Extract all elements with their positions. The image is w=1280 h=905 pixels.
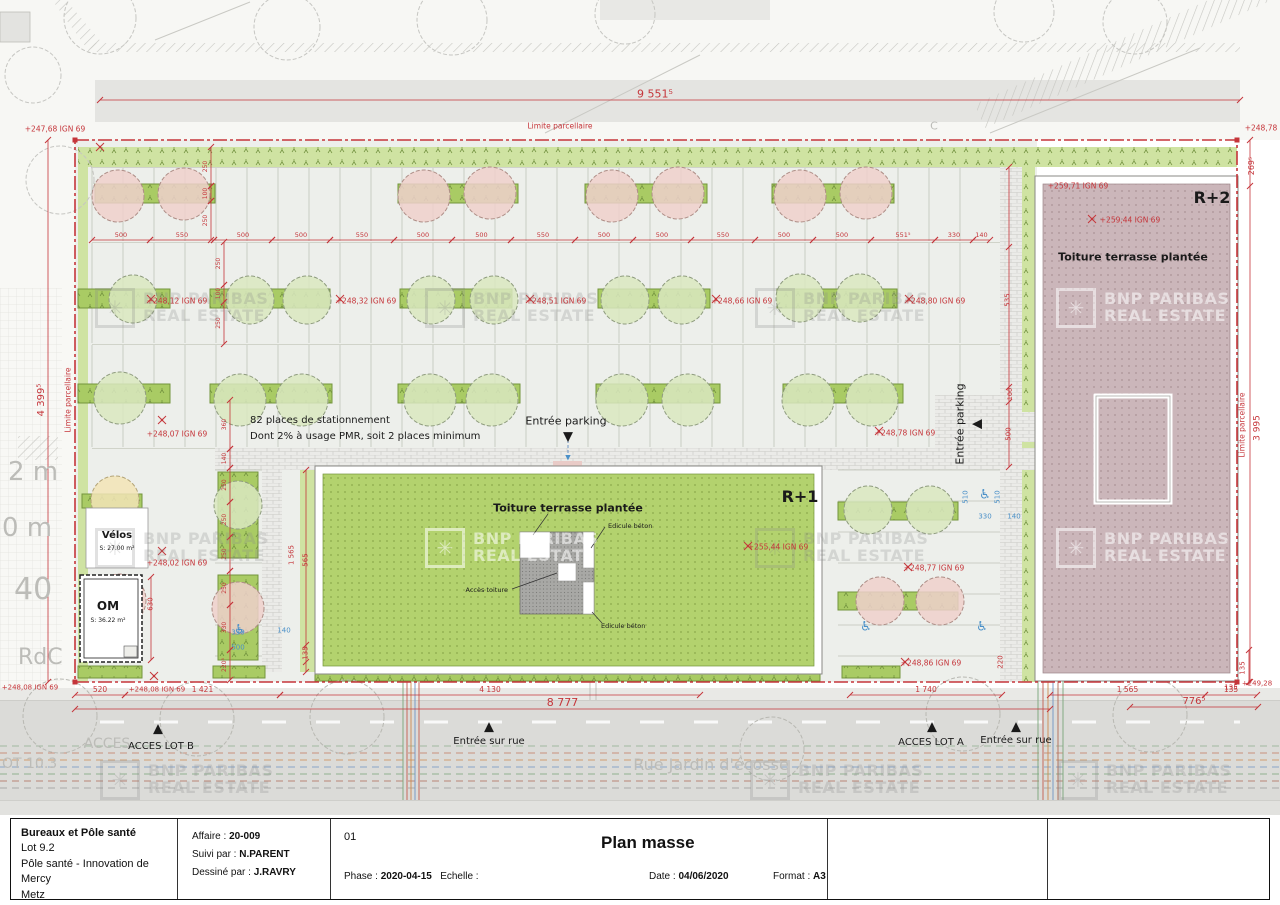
svg-text:1 740: 1 740 [915,685,937,694]
title-block-extra-area [1048,819,1269,899]
svg-text:220⁵: 220⁵ [221,657,228,671]
svg-text:500: 500 [417,231,429,239]
site-plan-page: 5005505005005505005005505005005505005005… [0,0,1280,905]
svg-text:8 777: 8 777 [547,696,579,709]
svg-text:250: 250 [221,479,228,491]
svg-text:500: 500 [656,231,668,239]
svg-text:360: 360 [221,419,228,431]
svg-text:500: 500 [237,231,249,239]
title-block-main: 01 Phase : 2020-04-15 Echelle : Plan mas… [331,819,828,899]
title-block: Bureaux et Pôle santé Lot 9.2 Pôle santé… [10,818,1270,900]
dessine-row: Dessiné par : J.RAVRY [192,867,296,878]
svg-text:550: 550 [176,231,188,239]
svg-text:500: 500 [836,231,848,239]
svg-text:500: 500 [115,231,127,239]
svg-text:551⁵: 551⁵ [895,231,910,239]
svg-text:250: 250 [221,548,228,560]
suivi-row: Suivi par : N.PARENT [192,849,290,860]
plan-drawing: 5005505005005505005005505005005505005005… [0,0,1280,905]
project-name: Pôle santé - Innovation de Mercy [21,857,177,888]
svg-text:500: 500 [778,231,790,239]
svg-text:250: 250 [215,258,222,270]
svg-text:140: 140 [975,231,987,239]
svg-text:1 421: 1 421 [192,685,214,694]
project-lot: Lot 9.2 [21,841,177,856]
drawing-title: Plan masse [601,833,695,853]
svg-text:330: 330 [948,231,960,239]
title-block-people: Affaire : 20-009 Suivi par : N.PARENT De… [178,819,331,899]
project-city: Metz [21,888,177,903]
svg-text:500: 500 [598,231,610,239]
svg-text:500: 500 [295,231,307,239]
svg-text:135: 135 [1224,685,1239,694]
title-block-project: Bureaux et Pôle santé Lot 9.2 Pôle santé… [11,819,178,899]
affaire-row: Affaire : 20-009 [192,831,260,842]
svg-text:100: 100 [202,188,209,200]
svg-text:550: 550 [717,231,729,239]
svg-text:500: 500 [475,231,487,239]
project-title: Bureaux et Pôle santé [21,826,177,841]
date-row: Date : 04/06/2020 [649,871,729,882]
sheet-number: 01 [344,831,356,843]
svg-text:250: 250 [202,161,209,173]
building-r1 [315,440,822,674]
svg-text:550: 550 [537,231,549,239]
svg-text:250: 250 [202,215,209,227]
svg-text:140: 140 [221,453,228,465]
title-block-logo-area [828,819,1048,899]
svg-text:250: 250 [221,514,228,526]
svg-text:4 130: 4 130 [479,685,501,694]
svg-text:330: 330 [221,622,228,634]
building-r2 [1035,176,1238,681]
svg-text:1 565: 1 565 [1117,685,1139,694]
svg-text:550: 550 [356,231,368,239]
svg-text:100: 100 [215,288,222,300]
svg-text:250: 250 [221,582,228,594]
svg-text:520: 520 [93,685,108,694]
format-row: Format : A3 [773,871,826,882]
velos-om-boxes [80,508,148,662]
svg-text:776⁵: 776⁵ [1182,696,1205,707]
phase-row: Phase : 2020-04-15 Echelle : [344,871,479,882]
svg-text:250: 250 [215,317,222,329]
